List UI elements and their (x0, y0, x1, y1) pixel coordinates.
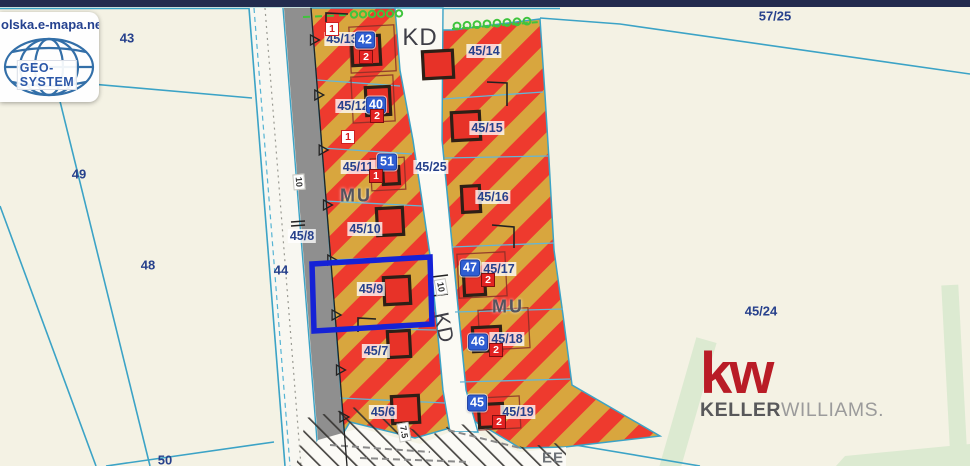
parcel-label-45-9: 45/9 (357, 282, 385, 296)
geosystem-watermark-card: olska.e-mapa.net GEO-SYSTEM (0, 12, 99, 102)
address-badge-46: 46 (468, 334, 488, 351)
zone-mu-right-column (441, 19, 660, 448)
parcel-label-45-24: 45/24 (745, 304, 778, 319)
road-width-10-right: 10 (434, 278, 449, 296)
parcel-label-45-7: 45/7 (362, 344, 390, 358)
parcel-label-49: 49 (72, 167, 86, 182)
parcel-label-45-14: 45/14 (466, 44, 501, 58)
parcel-label-57-25: 57/25 (759, 9, 792, 24)
road-label-kd-top: KD (402, 24, 437, 52)
kw-monogram: kw (700, 346, 884, 402)
house-number-1-45-12: 1 (341, 130, 355, 144)
map-viewport[interactable]: olska.e-mapa.net GEO-SYSTEM 43 57/25 49 … (0, 0, 970, 466)
kw-wordmark: KELLERWILLIAMS. (700, 399, 884, 422)
parcel-label-45-15: 45/15 (469, 121, 504, 135)
house-number-1-45-11: 1 (369, 169, 383, 183)
parcel-label-45-25: 45/25 (413, 160, 448, 174)
parcel-label-43: 43 (120, 31, 134, 46)
keller-williams-logo: kw KELLERWILLIAMS. (700, 346, 884, 422)
parcel-label-45-6: 45/6 (369, 405, 397, 419)
house-number-1-45-13: 1 (325, 22, 339, 36)
house-number-2-45-13: 2 (359, 50, 373, 64)
parcel-label-50: 50 (158, 453, 172, 466)
kw-wordmark-williams: WILLIAMS. (781, 399, 884, 421)
house-number-2-45-19: 2 (492, 415, 506, 429)
parcel-label-45-16: 45/16 (475, 190, 510, 204)
geosystem-logo-text: GEO-SYSTEM (17, 60, 77, 90)
address-badge-51: 51 (377, 154, 397, 171)
address-badge-47: 47 (460, 260, 480, 277)
house-number-2-45-18: 2 (489, 343, 503, 357)
zone-label-mu-left: MU (340, 186, 372, 207)
address-badge-45: 45 (467, 395, 487, 412)
parcel-label-44: 44 (274, 263, 288, 278)
zone-label-ee: EE (542, 450, 564, 466)
parcel-label-48: 48 (141, 258, 155, 273)
address-badge-42: 42 (355, 32, 375, 49)
parcel-label-45-8: 45/8 (288, 229, 316, 243)
kw-wordmark-keller: KELLER (700, 399, 781, 421)
zone-label-mu-right: MU (492, 297, 524, 318)
emapa-site-text: olska.e-mapa.net (1, 17, 99, 32)
top-border-bar (0, 0, 970, 7)
road-width-10-left: 10 (292, 173, 305, 190)
house-number-2-45-12: 2 (370, 109, 384, 123)
house-number-2-45-17: 2 (481, 273, 495, 287)
parcel-label-45-10: 45/10 (347, 222, 382, 236)
